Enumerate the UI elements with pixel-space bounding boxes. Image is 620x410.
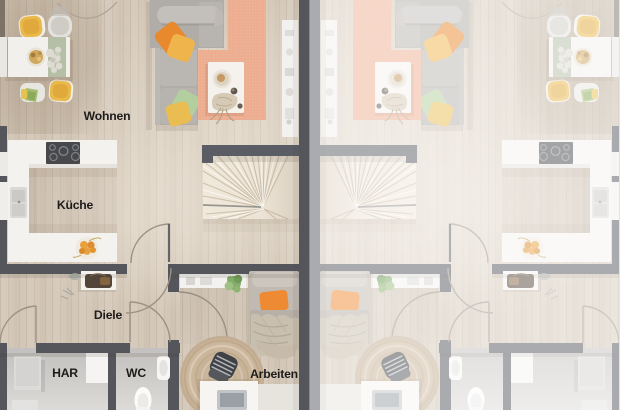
svg-text:HAR: HAR xyxy=(52,366,78,380)
svg-text:WC: WC xyxy=(126,366,146,380)
svg-text:Arbeiten: Arbeiten xyxy=(250,367,298,381)
svg-text:Diele: Diele xyxy=(94,308,123,322)
svg-text:Küche: Küche xyxy=(57,198,94,212)
svg-text:Wohnen: Wohnen xyxy=(84,109,131,123)
